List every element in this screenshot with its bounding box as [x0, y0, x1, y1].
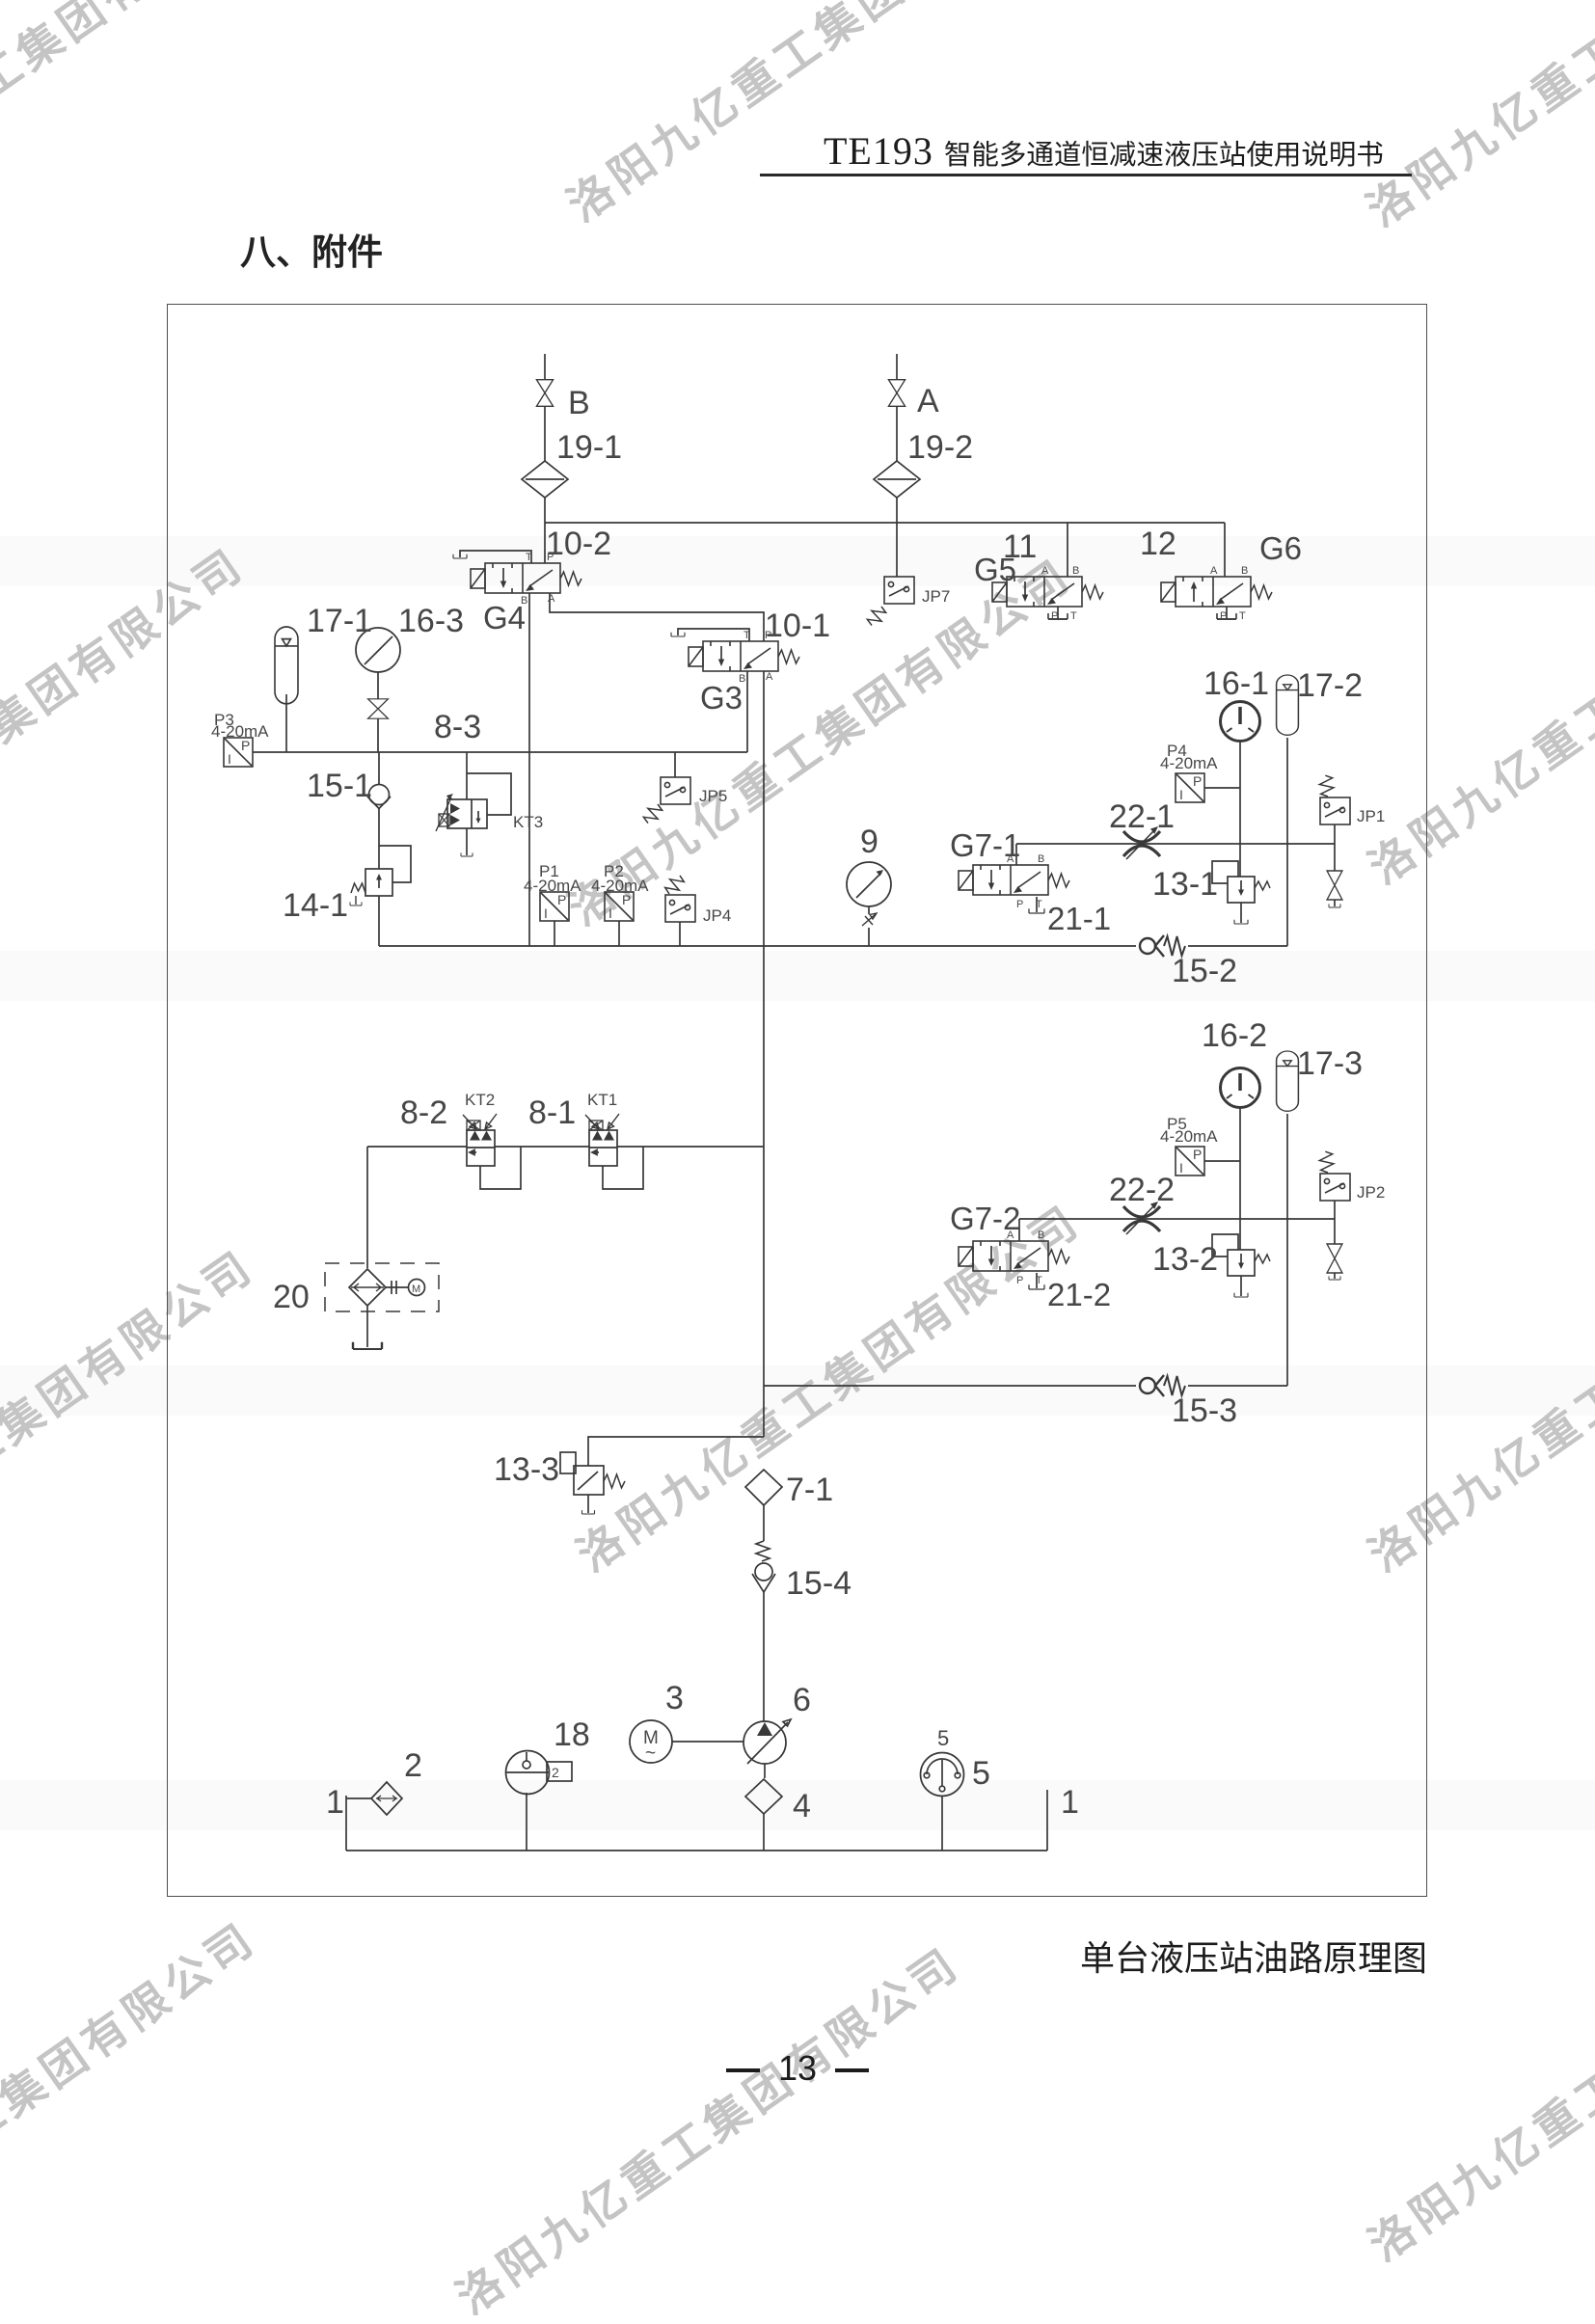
svg-text:4-20mA: 4-20mA	[524, 877, 581, 895]
svg-text:A: A	[766, 671, 773, 683]
svg-text:6: 6	[793, 1682, 811, 1718]
svg-text:B: B	[1072, 565, 1079, 577]
svg-text:16-1: 16-1	[1203, 665, 1269, 702]
svg-text:10-2: 10-2	[546, 526, 611, 562]
svg-text:P: P	[1016, 1275, 1023, 1286]
svg-text:1: 1	[1061, 1784, 1079, 1821]
svg-text:P: P	[765, 630, 771, 641]
svg-text:13-2: 13-2	[1152, 1241, 1218, 1278]
svg-text:5: 5	[937, 1726, 949, 1750]
svg-text:15-3: 15-3	[1172, 1392, 1237, 1429]
svg-text:~: ~	[645, 1743, 656, 1764]
svg-text:17-2: 17-2	[1297, 667, 1363, 704]
svg-text:8-1: 8-1	[528, 1094, 576, 1131]
svg-text:M: M	[412, 1284, 420, 1295]
svg-text:19-2: 19-2	[907, 429, 973, 466]
svg-text:B: B	[1241, 565, 1248, 577]
svg-text:JP4: JP4	[703, 906, 731, 925]
svg-text:G5: G5	[974, 552, 1016, 587]
svg-text:G6: G6	[1259, 530, 1302, 566]
svg-text:16-2: 16-2	[1202, 1017, 1267, 1054]
svg-text:2: 2	[552, 1765, 559, 1780]
svg-text:KT3: KT3	[513, 813, 543, 831]
svg-text:A: A	[1007, 1230, 1014, 1241]
svg-text:12: 12	[1140, 526, 1176, 562]
svg-text:P: P	[1051, 610, 1058, 622]
svg-text:JP5: JP5	[699, 787, 727, 805]
svg-text:5: 5	[972, 1755, 990, 1792]
svg-text:B: B	[1038, 1230, 1044, 1241]
svg-text:G3: G3	[700, 680, 743, 716]
svg-text:2: 2	[404, 1747, 422, 1784]
svg-text:JP2: JP2	[1357, 1183, 1385, 1202]
svg-text:A: A	[1210, 565, 1218, 577]
svg-text:13-3: 13-3	[494, 1451, 559, 1488]
svg-text:B: B	[1038, 853, 1044, 865]
svg-text:3: 3	[665, 1680, 684, 1716]
svg-text:4-20mA: 4-20mA	[211, 722, 269, 741]
svg-text:15-2: 15-2	[1172, 953, 1237, 989]
svg-text:4-20mA: 4-20mA	[591, 877, 649, 895]
svg-text:T: T	[1070, 610, 1077, 622]
svg-text:22-1: 22-1	[1109, 798, 1175, 835]
svg-text:21-2: 21-2	[1047, 1277, 1111, 1312]
svg-text:T: T	[526, 552, 532, 563]
svg-text:8-3: 8-3	[434, 709, 481, 745]
svg-text:JP1: JP1	[1357, 807, 1385, 825]
svg-text:15-1: 15-1	[307, 768, 372, 804]
svg-text:JP7: JP7	[922, 587, 950, 606]
svg-text:4-20mA: 4-20mA	[1160, 754, 1218, 772]
svg-text:8-2: 8-2	[400, 1094, 447, 1131]
svg-text:7-1: 7-1	[786, 1472, 833, 1508]
svg-text:21-1: 21-1	[1047, 901, 1111, 936]
svg-text:4-20mA: 4-20mA	[1160, 1127, 1218, 1146]
svg-text:4: 4	[793, 1788, 811, 1824]
svg-text:T: T	[1239, 610, 1246, 622]
svg-text:A: A	[1041, 565, 1049, 577]
svg-text:B: B	[739, 673, 745, 685]
svg-text:B: B	[521, 595, 527, 607]
svg-text:1: 1	[326, 1784, 344, 1821]
svg-text:T: T	[1036, 1275, 1042, 1286]
svg-text:17-3: 17-3	[1297, 1045, 1363, 1082]
svg-text:10-1: 10-1	[765, 608, 830, 644]
svg-text:20: 20	[273, 1279, 310, 1315]
svg-text:18: 18	[554, 1716, 590, 1753]
svg-text:B: B	[568, 385, 590, 421]
svg-text:G4: G4	[483, 600, 526, 635]
svg-text:P: P	[547, 552, 554, 563]
svg-text:T: T	[1036, 899, 1042, 910]
svg-text:19-1: 19-1	[556, 429, 622, 466]
svg-text:A: A	[917, 383, 939, 419]
svg-text:15-4: 15-4	[786, 1565, 852, 1602]
svg-text:P: P	[1220, 610, 1227, 622]
svg-text:P: P	[1016, 899, 1023, 910]
svg-text:KT2: KT2	[465, 1091, 495, 1109]
svg-text:T: T	[743, 630, 750, 641]
svg-text:A: A	[1007, 853, 1014, 865]
svg-text:9: 9	[860, 824, 879, 860]
svg-text:22-2: 22-2	[1109, 1172, 1175, 1208]
svg-text:KT1: KT1	[587, 1091, 617, 1109]
svg-text:13-1: 13-1	[1152, 866, 1218, 903]
svg-text:17-1: 17-1	[307, 603, 372, 639]
svg-text:16-3: 16-3	[398, 603, 464, 639]
svg-text:A: A	[548, 593, 555, 605]
svg-text:14-1: 14-1	[283, 887, 348, 924]
